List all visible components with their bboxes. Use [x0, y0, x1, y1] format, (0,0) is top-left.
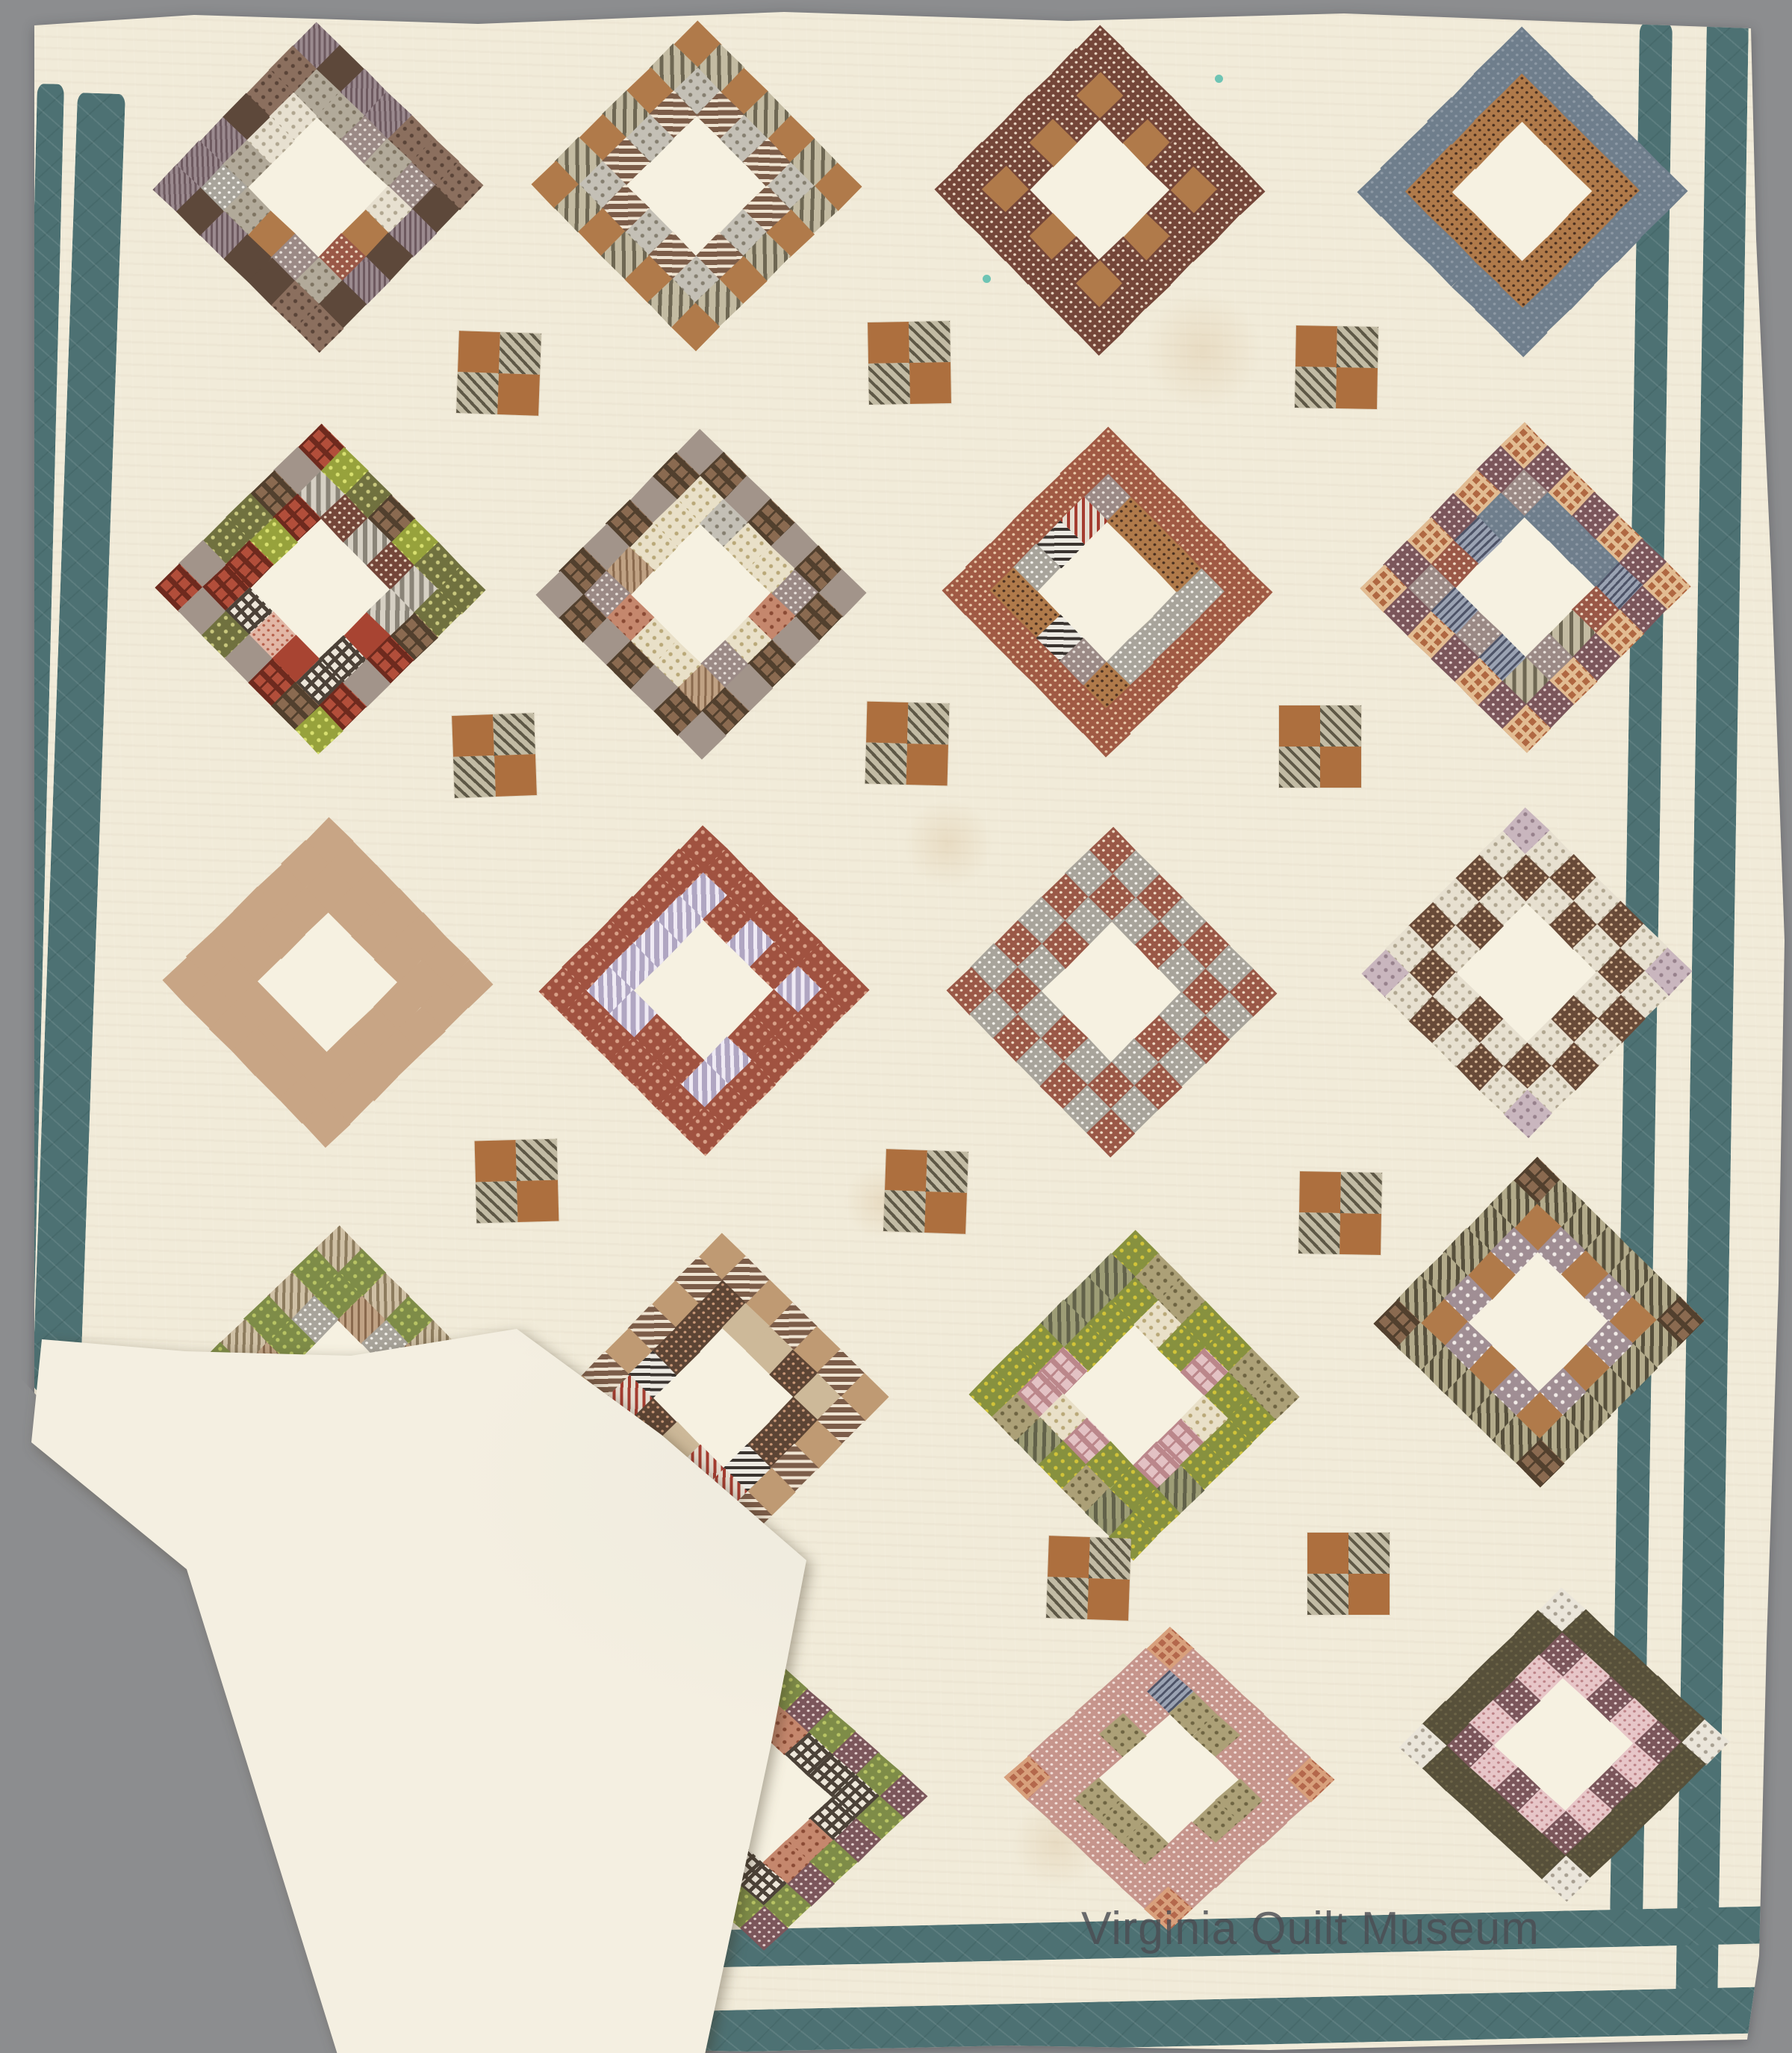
- quilt-photo: Virginia Quilt Museum: [0, 0, 1792, 2053]
- quilt-folded-backing: [0, 0, 1792, 2053]
- folded-corner-wrap: [0, 0, 1792, 2053]
- museum-watermark: Virginia Quilt Museum: [1081, 1902, 1540, 1955]
